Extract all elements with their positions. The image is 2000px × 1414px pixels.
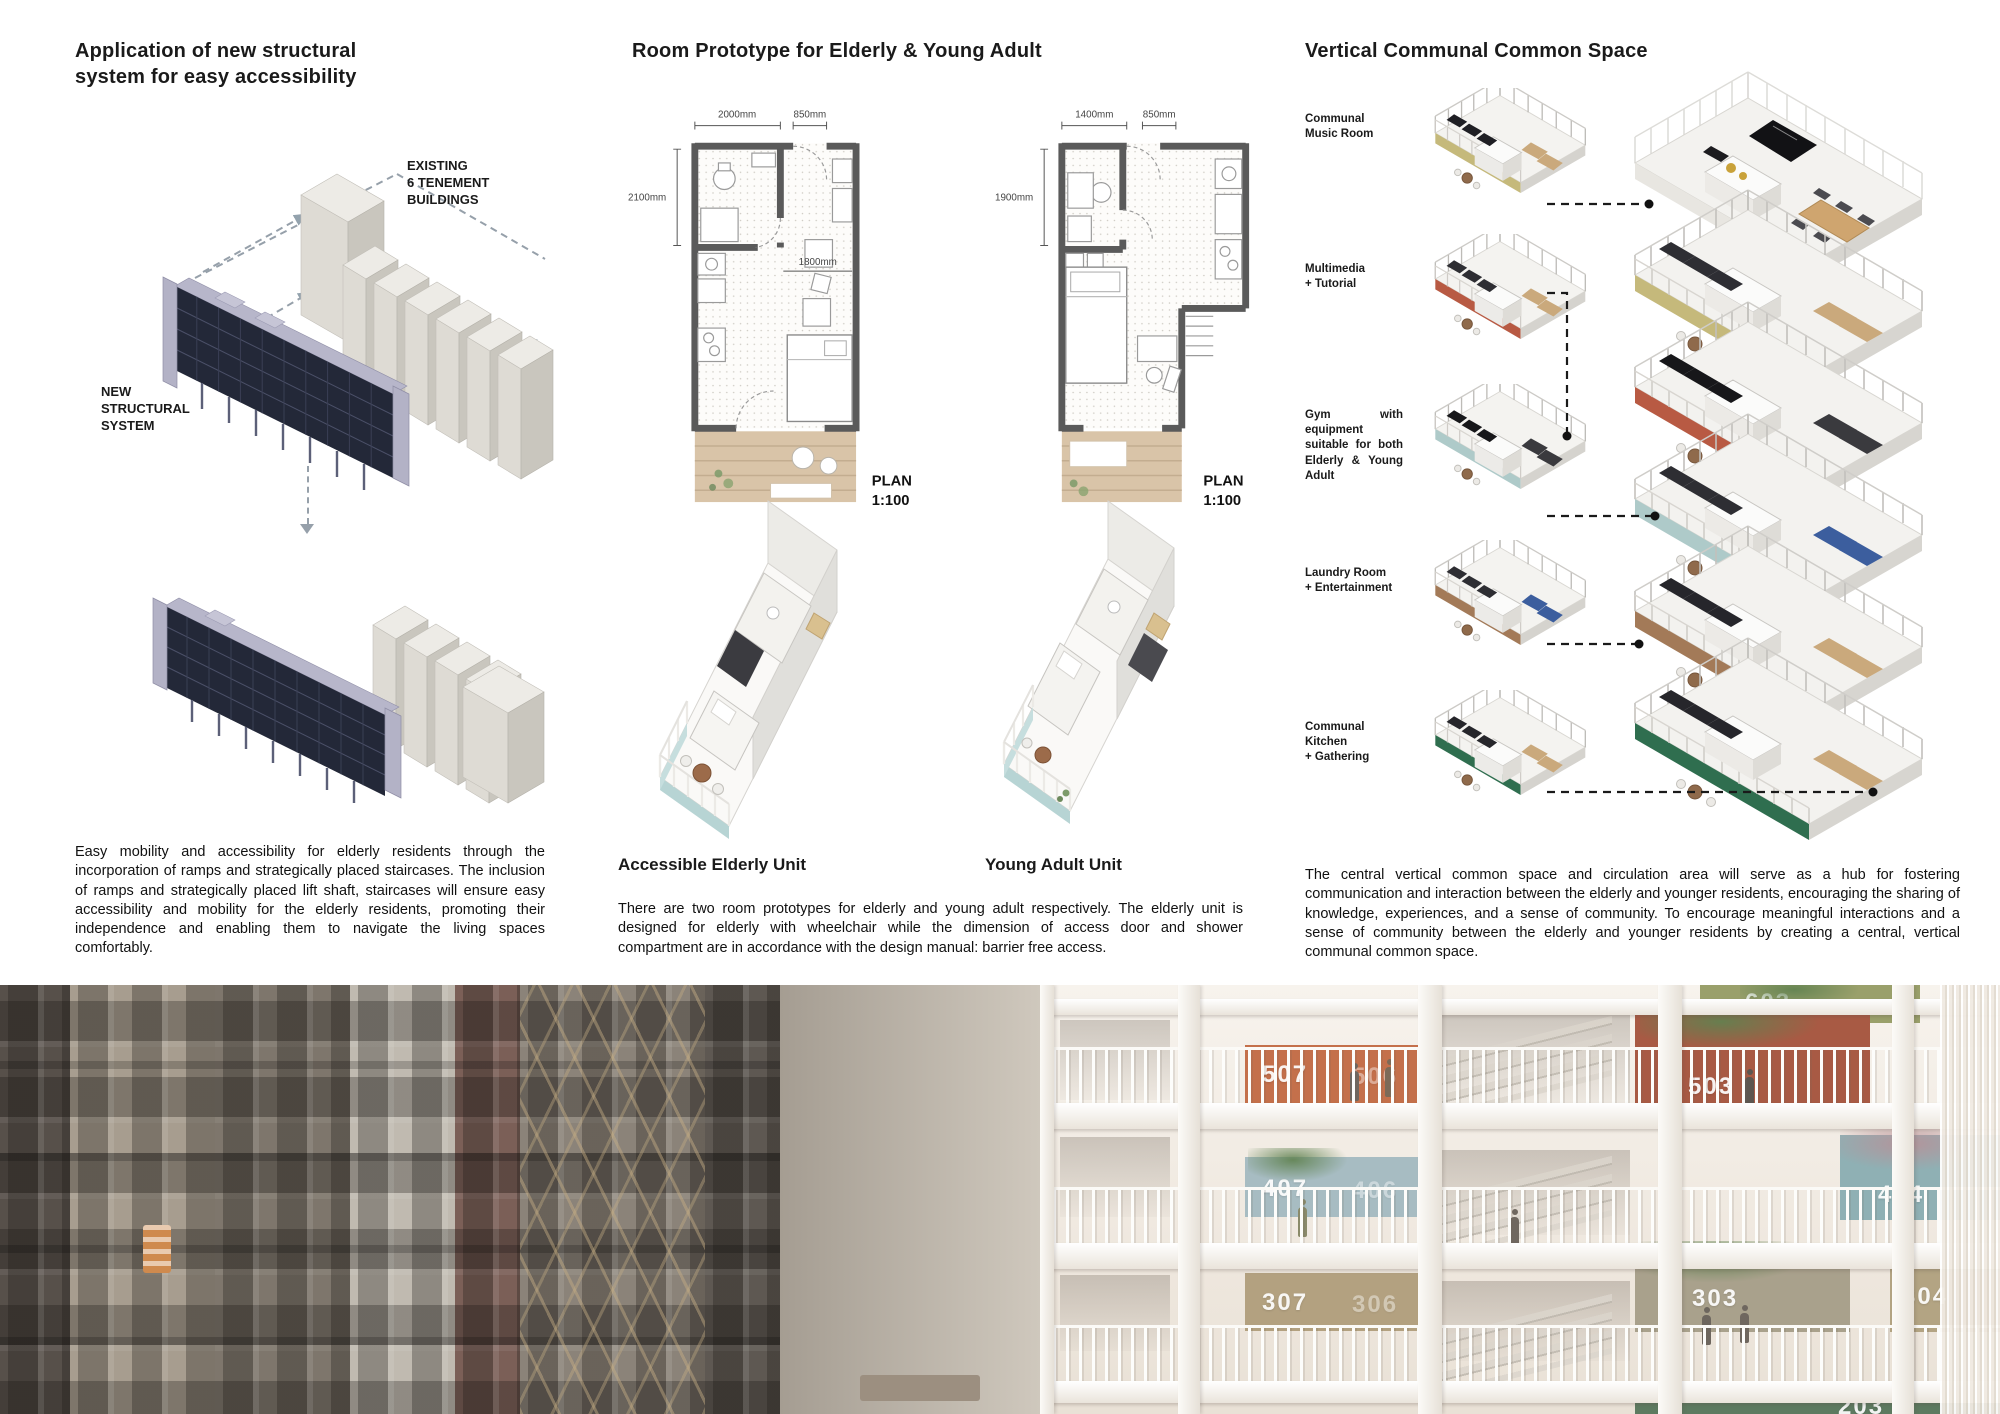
page-title-left: Application of new structural system for…: [75, 38, 565, 90]
structural-column: [1040, 985, 1054, 1414]
room-number: 307: [1262, 1289, 1308, 1317]
diagram-merged-structure: [85, 506, 555, 840]
room-number: 303: [1692, 1285, 1738, 1313]
hanging-clothes-line: [860, 1375, 980, 1401]
module-laundry-room: [1405, 540, 1595, 690]
svg-text:850mm: 850mm: [793, 110, 826, 121]
module-communal-kitchen: [1405, 690, 1595, 840]
room-number: 306: [1352, 1291, 1398, 1319]
plan-balcony: [695, 431, 856, 502]
svg-text:2100mm: 2100mm: [628, 192, 666, 203]
isometric-elderly-unit: [618, 493, 918, 848]
facade-segment: [780, 985, 1040, 1414]
label-gym: Gym with equipment suitable for both Eld…: [1305, 408, 1403, 484]
structural-column: [1418, 985, 1442, 1414]
structural-column: [1892, 985, 1914, 1414]
paragraph-structural-system: Easy mobility and accessibility for elde…: [75, 843, 545, 959]
section-structural-system: Application of new structural system for…: [75, 38, 565, 978]
svg-text:1900mm: 1900mm: [995, 192, 1033, 203]
label-multimedia-tutorial: Multimedia + Tutorial: [1305, 262, 1403, 292]
structural-column: [1658, 985, 1682, 1414]
old-tenement-photo: [0, 985, 1040, 1414]
module-communal-music-room: [1405, 88, 1595, 238]
isometric-young-adult-unit: [948, 493, 1248, 848]
section-vertical-communal-space: Vertical Communal Common Space Communal …: [1305, 38, 1973, 978]
facade-segment: [350, 985, 455, 1414]
facade-segment: [455, 985, 520, 1414]
bamboo-scaffolding: [520, 985, 705, 1414]
plan-scale-label: PLAN: [872, 473, 912, 489]
facade-segment: [705, 985, 780, 1414]
louver-screen: [1940, 985, 2000, 1414]
svg-text:1400mm: 1400mm: [1075, 110, 1113, 121]
plan-balcony: [1062, 431, 1182, 502]
module-multimedia-tutorial: [1405, 234, 1595, 384]
plan-bed: [787, 335, 852, 422]
svg-text:1800mm: 1800mm: [799, 257, 837, 268]
merged-tall-building: [463, 666, 544, 803]
label-laundry-room: Laundry Room + Entertainment: [1305, 566, 1403, 596]
facade-segment: [0, 985, 70, 1414]
facade-segment: [215, 985, 350, 1414]
label-communal-music-room: Communal Music Room: [1305, 112, 1403, 142]
diagram-existing-vs-new-structure: [75, 96, 565, 508]
page-title-middle: Room Prototype for Elderly & Young Adult: [618, 38, 1270, 64]
module-gym: [1405, 384, 1595, 534]
structural-column: [1178, 985, 1200, 1414]
label-communal-kitchen: Communal Kitchen + Gathering: [1305, 720, 1403, 766]
plan-scale-label: PLAN: [1203, 473, 1243, 489]
svg-text:850mm: 850mm: [1143, 110, 1176, 121]
section-room-prototype: Room Prototype for Elderly & Young Adult: [618, 38, 1270, 978]
caption-young-adult-unit: Young Adult Unit: [985, 855, 1122, 875]
facade-segment: [70, 985, 215, 1414]
caption-elderly-unit: Accessible Elderly Unit: [618, 855, 806, 875]
label-existing-buildings: EXISTING 6 TENEMENT BUILDINGS: [407, 158, 489, 209]
presentation-board: Application of new structural system for…: [0, 0, 2000, 1414]
hanging-laundry: [143, 1225, 171, 1273]
paragraph-room-prototype: There are two room prototypes for elderl…: [618, 900, 1243, 958]
vine-planting: [1248, 1148, 1348, 1182]
bottom-photo-strip: 603 507 506 503 407 406 404 307 306 303 …: [0, 985, 2000, 1414]
plan-bed: [1066, 267, 1127, 383]
plan-kitchen: [1215, 159, 1242, 279]
svg-text:2000mm: 2000mm: [718, 110, 756, 121]
plan-stairs: [1186, 316, 1214, 355]
merged-new-slab: [153, 598, 401, 803]
paragraph-communal-space: The central vertical common space and ci…: [1305, 866, 1960, 962]
label-new-structural-system: NEW STRUCTURAL SYSTEM: [101, 384, 190, 435]
stacked-communal-building: [1577, 56, 1973, 868]
new-building-render: 603 507 506 503 407 406 404 307 306 303 …: [1040, 985, 2000, 1414]
